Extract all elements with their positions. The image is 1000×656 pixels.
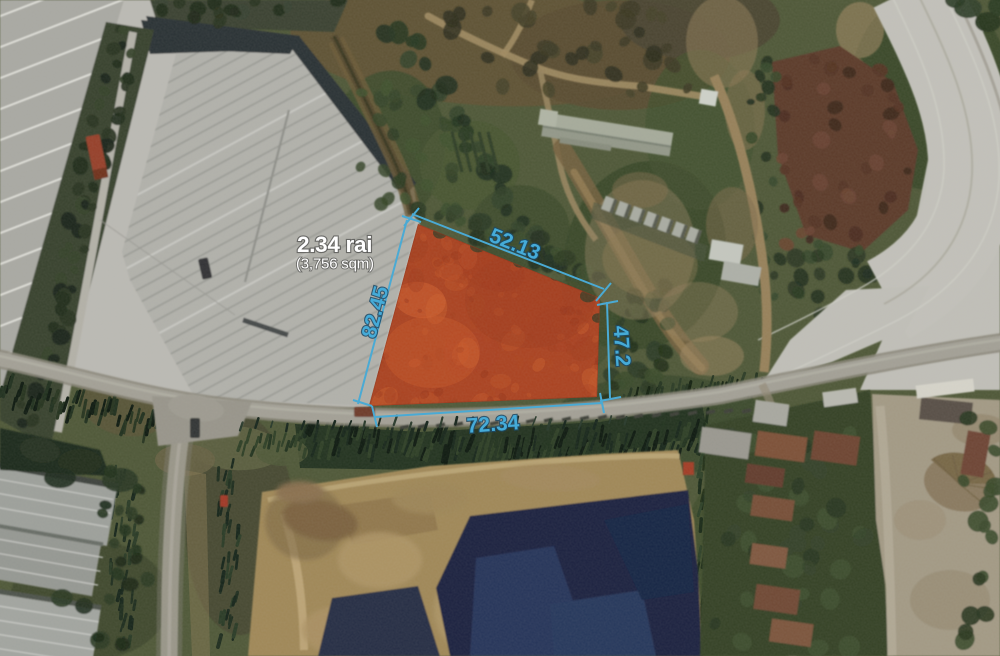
svg-text:(3,756 sqm): (3,756 sqm): [296, 256, 374, 273]
svg-text:47.2: 47.2: [609, 325, 635, 367]
svg-text:72.34: 72.34: [466, 411, 520, 438]
svg-text:2.34 rai: 2.34 rai: [297, 232, 372, 257]
